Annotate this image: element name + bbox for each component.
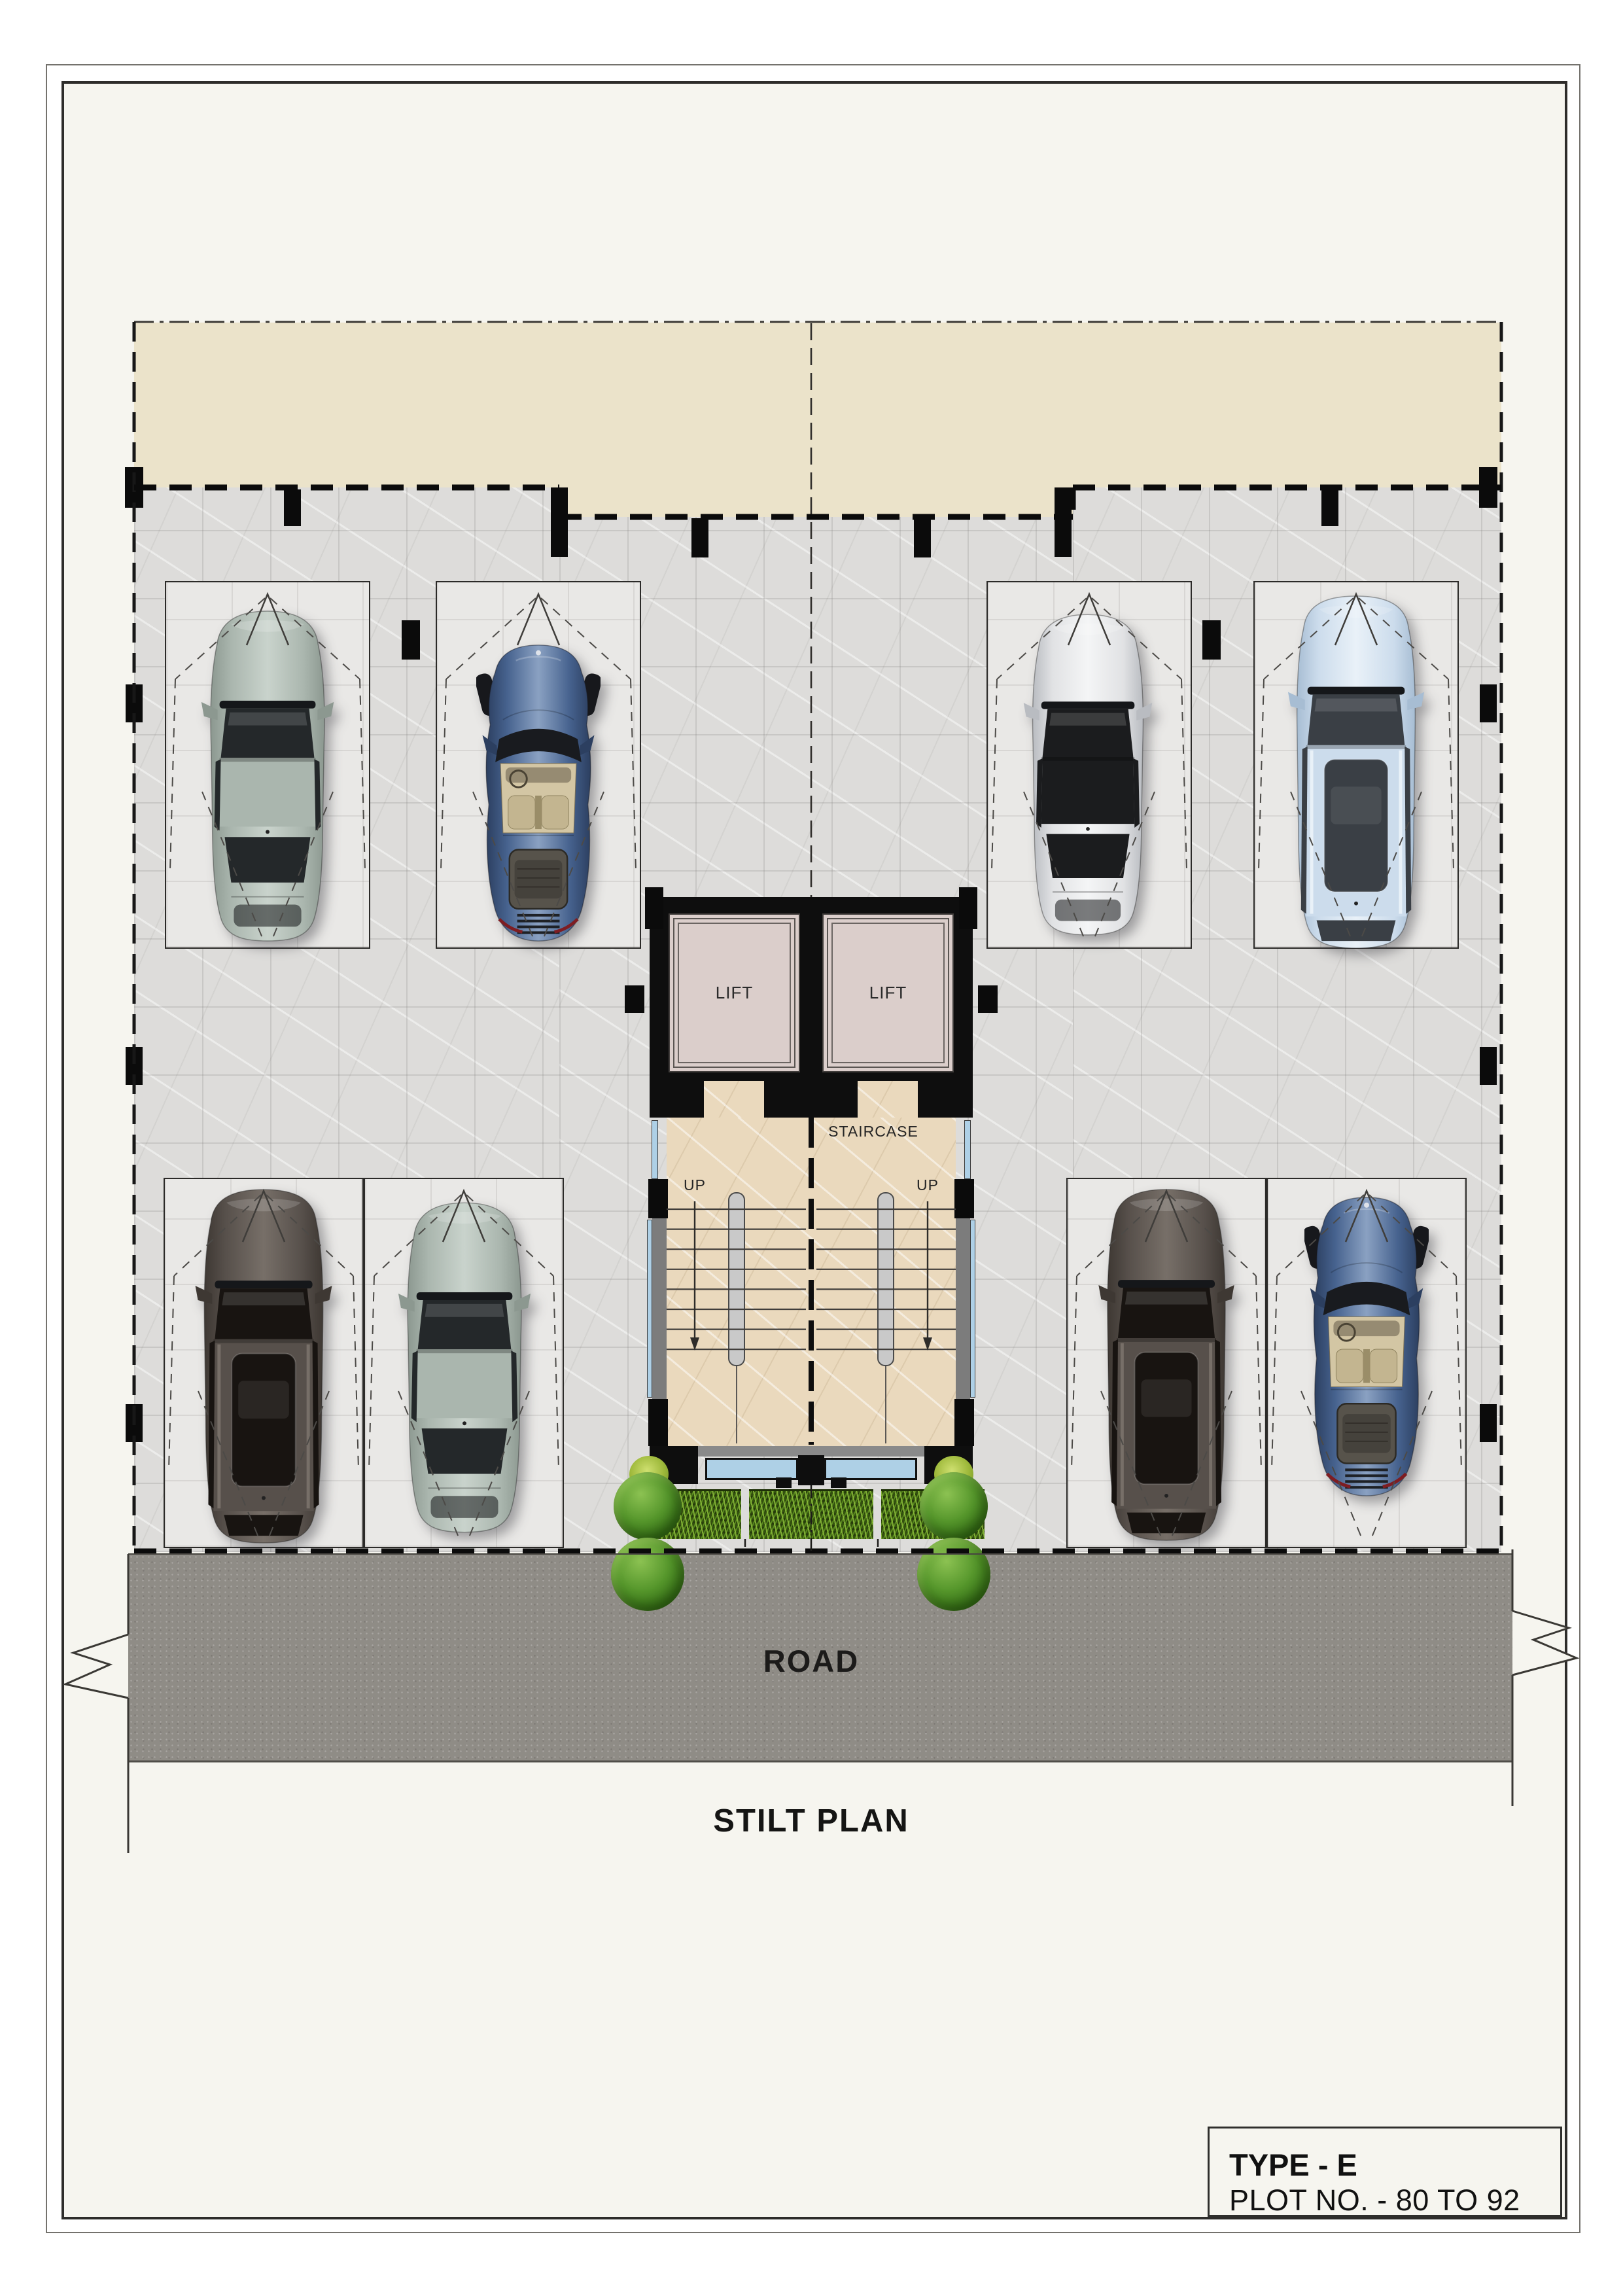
up-label-right: UP (901, 1175, 954, 1195)
car-sage-green-sedan (393, 1199, 536, 1536)
column (126, 684, 143, 722)
stair-handrail-left (728, 1192, 745, 1366)
staircase-window-left-2 (647, 1220, 652, 1398)
lift-door-opening-right (858, 1081, 918, 1118)
column (551, 487, 568, 557)
column (648, 1399, 668, 1446)
staircase-window-right (964, 1120, 971, 1179)
round-bush (920, 1472, 988, 1540)
staircase-window-left (652, 1120, 658, 1179)
lift-left-label: LIFT (716, 983, 753, 1003)
car-navy-blue-sports-car (476, 643, 601, 945)
car-dark-brown-suv (1091, 1186, 1242, 1544)
column (125, 467, 143, 508)
staircase-side-wall-right (956, 1218, 970, 1399)
title-block: TYPE - E PLOT NO. - 80 TO 92 (1208, 2127, 1562, 2217)
entry-threshold (776, 1477, 792, 1488)
hedge-strip (749, 1489, 873, 1539)
column (1480, 1047, 1497, 1085)
lift-shaft-left: LIFT (669, 913, 800, 1072)
column (954, 1399, 974, 1446)
entrance-glass-door-right (824, 1458, 917, 1480)
up-label-left: UP (669, 1175, 721, 1195)
sheet-title: STILT PLAN (680, 1801, 942, 1841)
round-bush (917, 1538, 990, 1611)
lift-shaft-right: LIFT (822, 913, 954, 1072)
round-bush (614, 1472, 682, 1540)
title-block-plot: PLOT NO. - 80 TO 92 (1229, 2182, 1560, 2219)
column (1480, 684, 1497, 722)
car-dark-brown-suv (188, 1186, 339, 1547)
column (1480, 1404, 1497, 1442)
column (284, 489, 301, 526)
column (959, 887, 977, 929)
column (1321, 489, 1338, 526)
column (126, 1047, 143, 1085)
column (954, 1179, 974, 1218)
column (691, 518, 708, 557)
column (1479, 467, 1497, 508)
entrance-glass-door-left (705, 1458, 798, 1480)
car-sage-green-sedan (196, 607, 340, 945)
title-block-type: TYPE - E (1229, 2148, 1560, 2182)
column (625, 985, 644, 1013)
entry-threshold (831, 1477, 846, 1488)
column (648, 1179, 668, 1218)
stair-handrail-right (877, 1192, 894, 1366)
column (126, 1404, 143, 1442)
lift-door-opening-left (704, 1081, 764, 1118)
column (914, 518, 931, 557)
lift-right-label: LIFT (869, 983, 907, 1003)
column (645, 887, 663, 929)
car-navy-blue-sports-car (1304, 1195, 1429, 1500)
column (1202, 620, 1221, 660)
round-bush (611, 1538, 684, 1611)
column (1055, 487, 1072, 557)
staircase-hall-floor (667, 1118, 956, 1446)
car-silver-white-sedan (1019, 603, 1157, 946)
car-pale-blue-suv (1281, 592, 1431, 952)
staircase-label: STAIRCASE (808, 1120, 939, 1142)
column (402, 620, 420, 660)
staircase-side-wall-left (652, 1218, 667, 1399)
staircase-window-right-2 (970, 1220, 975, 1398)
road-label: ROAD (713, 1641, 909, 1680)
column (978, 985, 998, 1013)
entry-center-pier (798, 1455, 824, 1485)
